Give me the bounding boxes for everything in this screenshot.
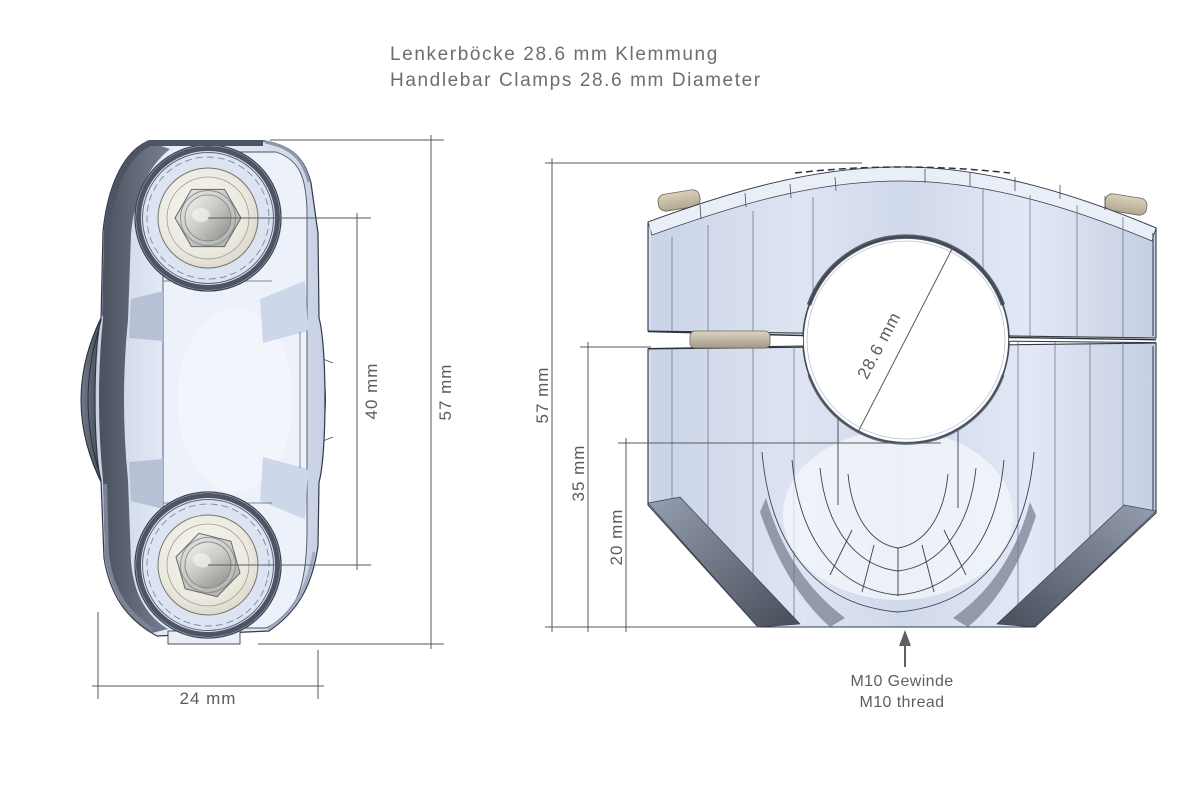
- thread-callout: M10 Gewinde M10 thread: [850, 630, 953, 711]
- dim-label-width: 24 mm: [180, 689, 237, 708]
- dim-label-bore-bottom-height: 20 mm: [607, 509, 626, 566]
- front-view: [648, 167, 1156, 627]
- technical-drawing-page: Lenkerböcke 28.6 mm Klemmung Handlebar C…: [0, 0, 1200, 800]
- clamp-drawing-svg: 40 mm 57 mm 24 mm: [0, 0, 1200, 800]
- dim-label-bolt-spacing: 40 mm: [362, 363, 381, 420]
- thread-note-german: M10 Gewinde: [850, 673, 953, 690]
- thread-note-english: M10 thread: [860, 694, 945, 711]
- thread-arrow-head-icon: [899, 630, 911, 646]
- dim-label-lower-height: 35 mm: [569, 445, 588, 502]
- gap-spacer-washer: [690, 331, 770, 348]
- dim-label-front-height: 57 mm: [533, 367, 552, 424]
- dim-label-top-view-length: 57 mm: [436, 364, 455, 421]
